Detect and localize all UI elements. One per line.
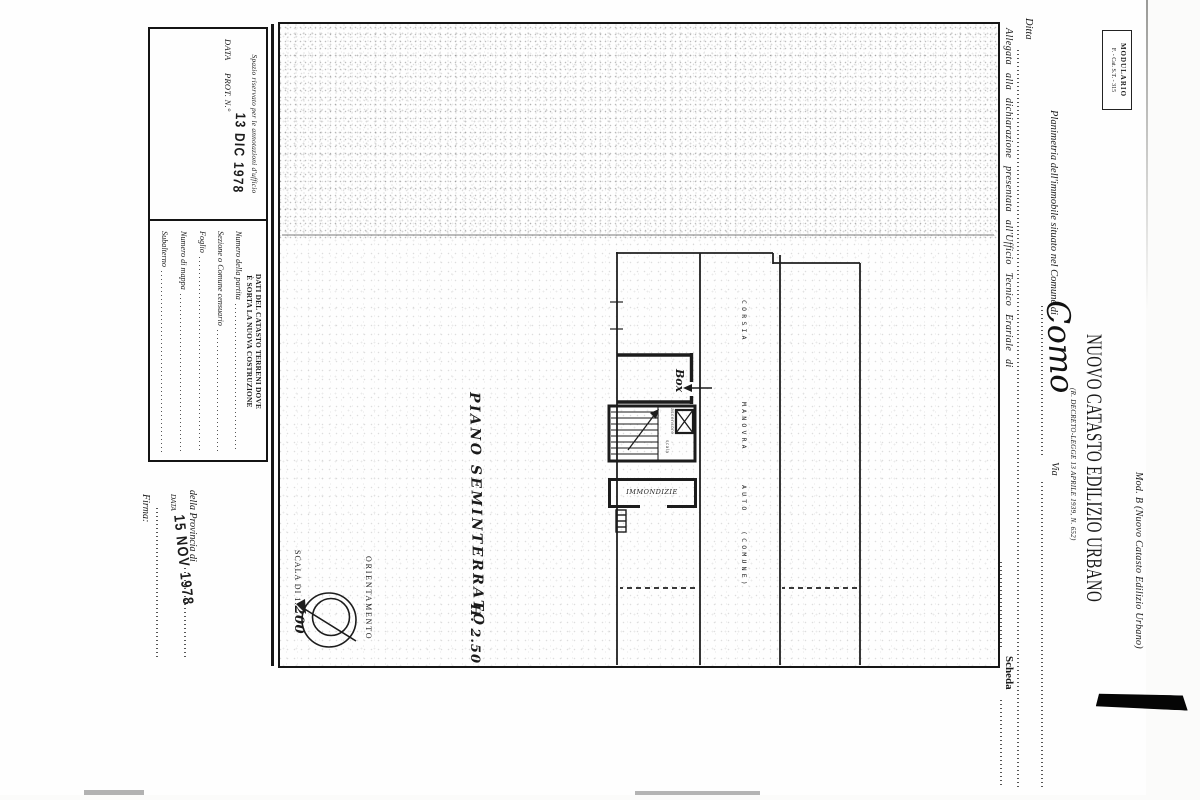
field-dotted-line xyxy=(180,294,182,452)
manovra-label: MANOVRA xyxy=(741,402,748,452)
field-row: Numero della partita xyxy=(234,231,242,452)
field-label: Foglio xyxy=(198,231,206,253)
catasto-header-line1: DATI DEL CATASTO TERRENI DOVE xyxy=(255,223,262,460)
data-prot-row: DATA PROT. N.° xyxy=(224,39,233,122)
field-label: Numero di mappa xyxy=(179,231,187,290)
immondizie-room-label: IMMONDIZIE xyxy=(612,488,692,498)
comune-paren-label: (COMUNE) xyxy=(741,531,748,588)
catasto-header-line2: È SORTA LA NUOVA COSTRUZIONE xyxy=(246,223,253,460)
field-row: Foglio xyxy=(198,231,206,452)
scale-value-handwritten: 200 xyxy=(291,605,306,634)
field-row: Subalterno xyxy=(160,231,168,452)
bottom-tables: Spazio riservato per le annotazioni d'uf… xyxy=(148,27,268,462)
annotations-header: Spazio riservato per le annotazioni d'uf… xyxy=(251,29,258,219)
data-label-small: DATA xyxy=(169,494,176,511)
document-sheet-rotated: MODULARIO F. - Cat. S.T. - 315 Mod. B (N… xyxy=(0,0,1200,800)
scale-prefix: SCALA DI 1: xyxy=(293,550,302,605)
field-dotted-line xyxy=(235,304,237,452)
shaft-tiny-label: ascensore xyxy=(669,408,674,434)
office-annotations-box: Spazio riservato per le annotazioni d'uf… xyxy=(150,29,266,221)
field-row: Sezione o Comune censuario xyxy=(216,231,224,452)
field-row: Numero di mappa xyxy=(179,231,187,452)
field-dotted-line xyxy=(161,271,163,452)
elevator-shaft-icon xyxy=(676,410,693,433)
field-dotted-line xyxy=(199,257,201,452)
box-entry-arrow xyxy=(683,384,712,392)
catasto-terreni-box: DATI DEL CATASTO TERRENI DOVE È SORTA LA… xyxy=(150,223,266,460)
field-label: Sezione o Comune censuario xyxy=(216,231,224,326)
corsia-label: CORSIA xyxy=(741,300,748,343)
orientamento-label: ORIENTAMENTO xyxy=(364,556,372,640)
field-label: Numero della partita xyxy=(234,231,242,300)
stair-tiny-label: scala xyxy=(664,440,669,454)
field-label: Subalterno xyxy=(160,231,168,267)
auto-label: AUTO xyxy=(741,485,748,513)
date-stamp-dec: 13 DIC 1978 xyxy=(231,113,248,194)
box-room-label: Box xyxy=(673,369,686,392)
data-label: DATA xyxy=(223,39,233,61)
data-dotted-line xyxy=(157,508,159,660)
prot-label: PROT. N.° xyxy=(223,73,233,112)
scale-label: SCALA DI 1:200 xyxy=(291,550,306,634)
scanned-cadastral-form: MODULARIO F. - Cat. S.T. - 315 Mod. B (N… xyxy=(0,0,1200,800)
firma-label: Firma: xyxy=(140,494,150,522)
field-dotted-line xyxy=(217,330,219,452)
height-note: H. 2.50 xyxy=(467,604,482,664)
